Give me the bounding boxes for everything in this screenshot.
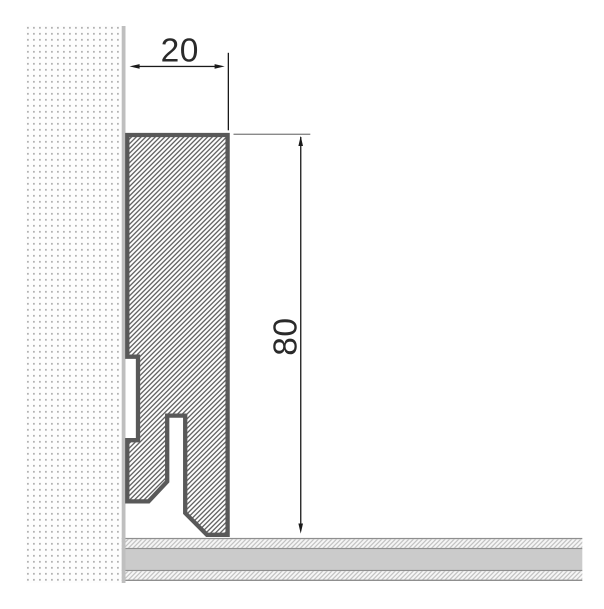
svg-text:20: 20 xyxy=(161,33,199,70)
svg-text:80: 80 xyxy=(267,317,304,355)
